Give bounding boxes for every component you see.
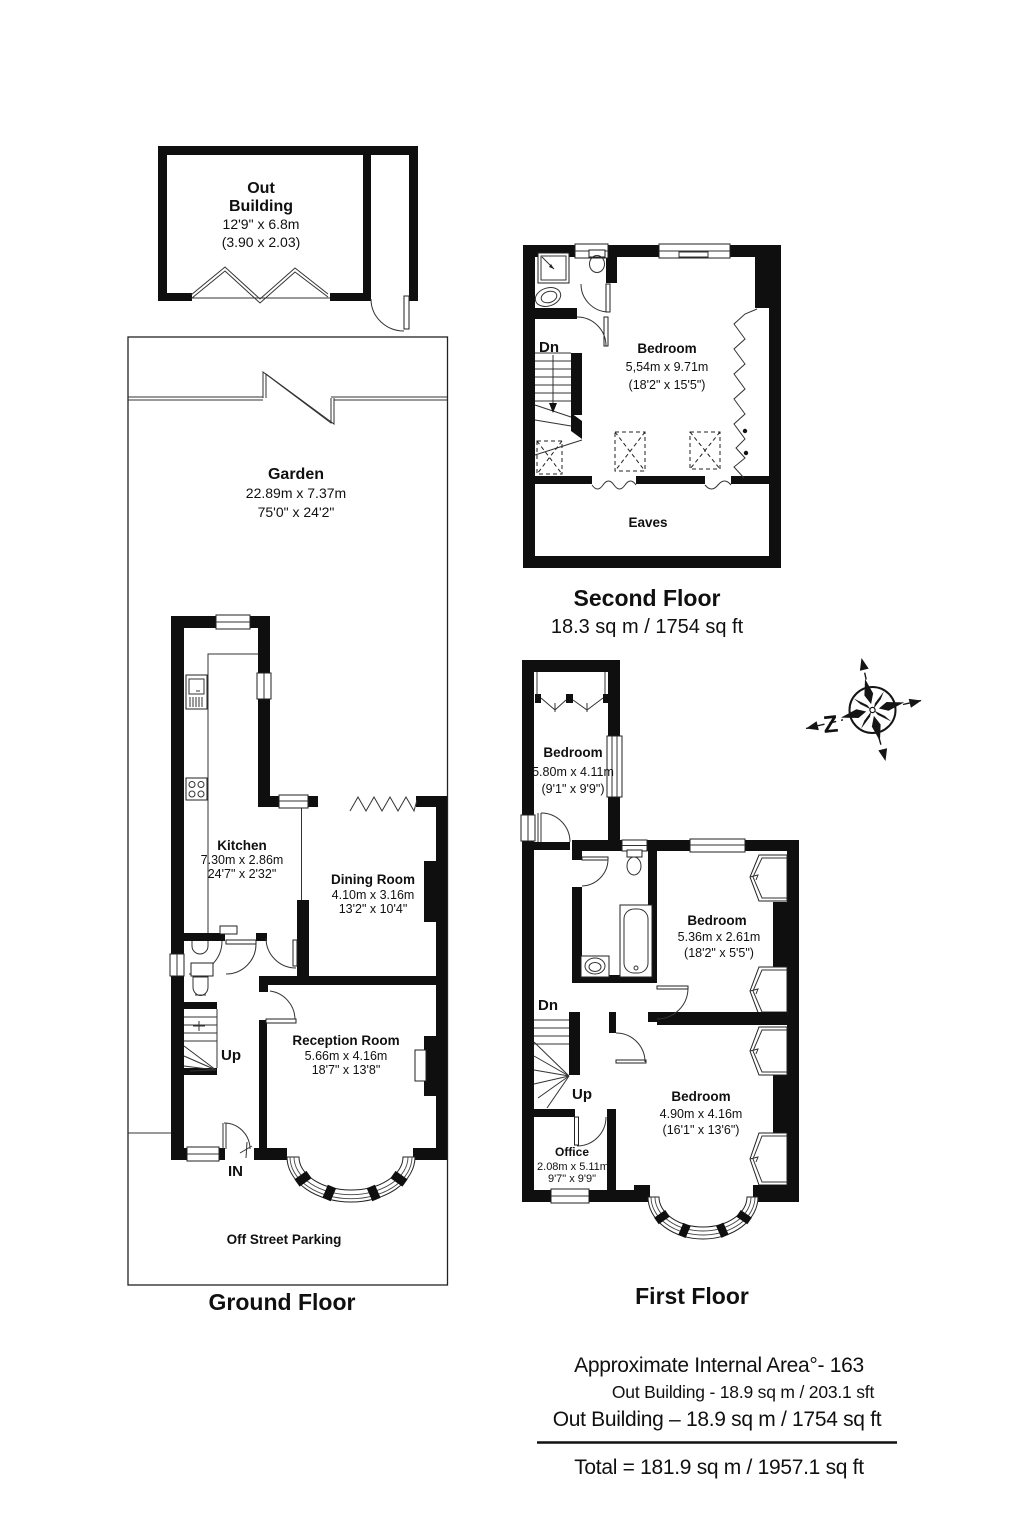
svg-text:Reception Room: Reception Room <box>292 1033 399 1048</box>
svg-text:7.30m x 2.86m: 7.30m x 2.86m <box>201 853 284 867</box>
svg-text:Out Building – 18.9 sq m / 175: Out Building – 18.9 sq m / 1754 sq ft <box>553 1408 882 1431</box>
svg-text:5.80m x 4.11m: 5.80m x 4.11m <box>532 765 614 779</box>
svg-text:Dn: Dn <box>538 997 558 1014</box>
svg-text:5.36m x 2.61m: 5.36m x 2.61m <box>678 930 761 944</box>
svg-text:4.90m x 4.16m: 4.90m x 4.16m <box>660 1107 743 1121</box>
svg-text:75'0" x 24'2": 75'0" x 24'2" <box>258 504 335 520</box>
svg-text:Dining Room: Dining Room <box>331 872 415 887</box>
svg-text:18'7" x 13'8": 18'7" x 13'8" <box>312 1063 381 1077</box>
svg-text:Up: Up <box>221 1047 241 1064</box>
svg-text:(18'2" x 15'5"): (18'2" x 15'5") <box>629 378 706 392</box>
svg-text:Out Building - 18.9 sq m / 203: Out Building - 18.9 sq m / 203.1 sft <box>612 1382 875 1402</box>
svg-text:Eaves: Eaves <box>628 515 667 530</box>
svg-text:(16'1" x 13'6"): (16'1" x 13'6") <box>663 1123 740 1137</box>
svg-text:Office: Office <box>555 1145 589 1159</box>
svg-text:Total = 181.9 sq m / 1957.1 sq: Total = 181.9 sq m / 1957.1 sq ft <box>574 1456 864 1479</box>
svg-text:Approximate Internal Area°- 16: Approximate Internal Area°- 163 <box>574 1354 864 1377</box>
svg-text:Bedroom: Bedroom <box>671 1089 730 1104</box>
svg-text:(3.90 x 2.03): (3.90 x 2.03) <box>222 234 301 250</box>
svg-text:Bedroom: Bedroom <box>543 745 602 760</box>
svg-text:5,54m x 9.71m: 5,54m x 9.71m <box>626 360 709 374</box>
svg-text:Z: Z <box>822 711 839 739</box>
svg-text:22.89m x 7.37m: 22.89m x 7.37m <box>246 485 346 501</box>
svg-text:IN: IN <box>228 1163 243 1180</box>
svg-text:Kitchen: Kitchen <box>217 838 267 853</box>
svg-text:Up: Up <box>572 1086 592 1103</box>
svg-text:4.10m x 3.16m: 4.10m x 3.16m <box>332 888 415 902</box>
svg-text:9'7" x 9'9": 9'7" x 9'9" <box>548 1173 596 1185</box>
svg-text:Dn: Dn <box>539 339 559 356</box>
svg-text:2.08m x 5.11m: 2.08m x 5.11m <box>537 1161 609 1173</box>
svg-text:First Floor: First Floor <box>635 1283 749 1309</box>
svg-text:12'9" x 6.8m: 12'9" x 6.8m <box>223 216 300 232</box>
svg-text:Second Floor: Second Floor <box>574 585 721 611</box>
svg-text:24'7" x 2'32": 24'7" x 2'32" <box>208 867 277 881</box>
svg-text:Bedroom: Bedroom <box>687 913 746 928</box>
svg-text:18.3 sq m / 1754 sq ft: 18.3 sq m / 1754 sq ft <box>551 616 744 638</box>
svg-text:Off Street Parking: Off Street Parking <box>227 1232 342 1247</box>
svg-text:Garden: Garden <box>268 466 324 483</box>
svg-text:Ground Floor: Ground Floor <box>209 1289 356 1315</box>
svg-text:Building: Building <box>229 198 293 215</box>
svg-text:Out: Out <box>247 180 275 197</box>
svg-text:(9'1" x 9'9"): (9'1" x 9'9") <box>542 782 605 796</box>
svg-text:13'2" x 10'4": 13'2" x 10'4" <box>339 902 408 916</box>
svg-text:5.66m x 4.16m: 5.66m x 4.16m <box>305 1049 388 1063</box>
svg-text:Bedroom: Bedroom <box>637 341 696 356</box>
svg-text:(18'2" x 5'5"): (18'2" x 5'5") <box>684 946 754 960</box>
